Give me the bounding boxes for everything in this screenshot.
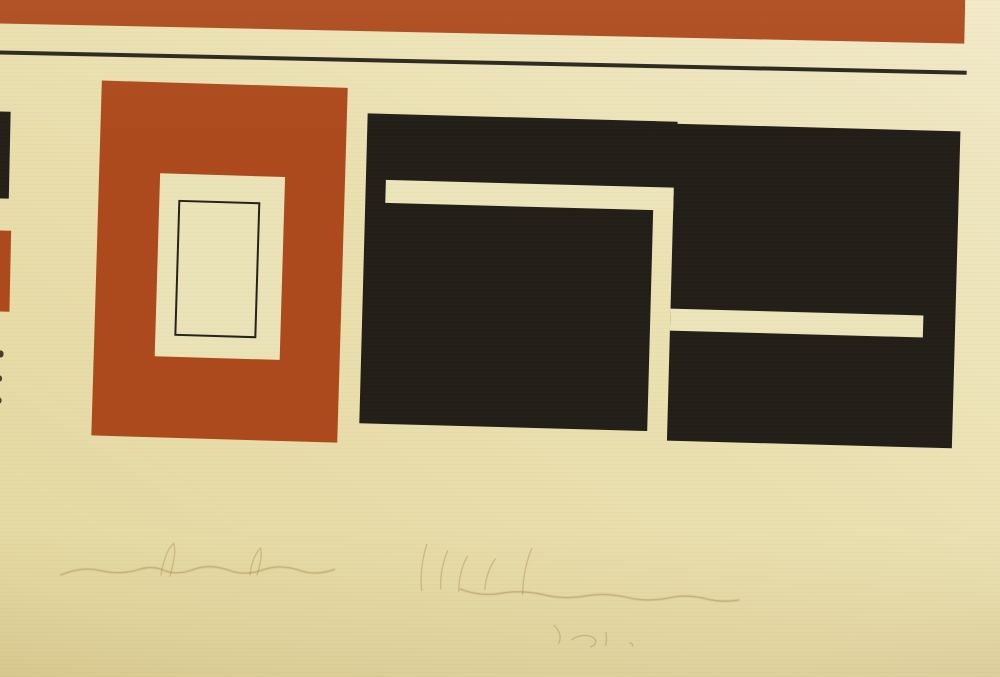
pencil-inscriptions <box>0 0 1000 677</box>
pencil-inscription-left <box>61 562 334 580</box>
pencil-inscription-center-tall-strokes <box>421 544 532 594</box>
print-artwork <box>0 0 1000 677</box>
pencil-inscription-center-smudge <box>461 589 739 602</box>
pencil-small-mark <box>554 625 633 648</box>
photograph-of-print <box>0 0 1000 677</box>
